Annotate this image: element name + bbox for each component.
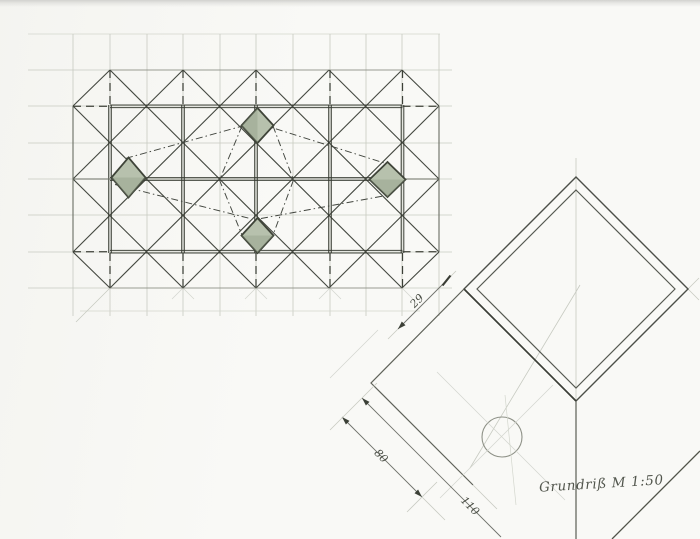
shaded-diamond-top bbox=[242, 108, 274, 143]
main-plan-dashdot-lines bbox=[115, 125, 386, 236]
dimension-80 bbox=[342, 417, 445, 520]
shaded-diamond-left bbox=[112, 158, 146, 198]
plan-drawing-svg bbox=[0, 0, 700, 539]
shaded-diamond-bottom bbox=[242, 218, 274, 253]
scanned-drawing-paper: 29 80 110 Grundriß M 1:50 bbox=[0, 0, 700, 539]
shaded-diamond-right bbox=[370, 162, 406, 197]
